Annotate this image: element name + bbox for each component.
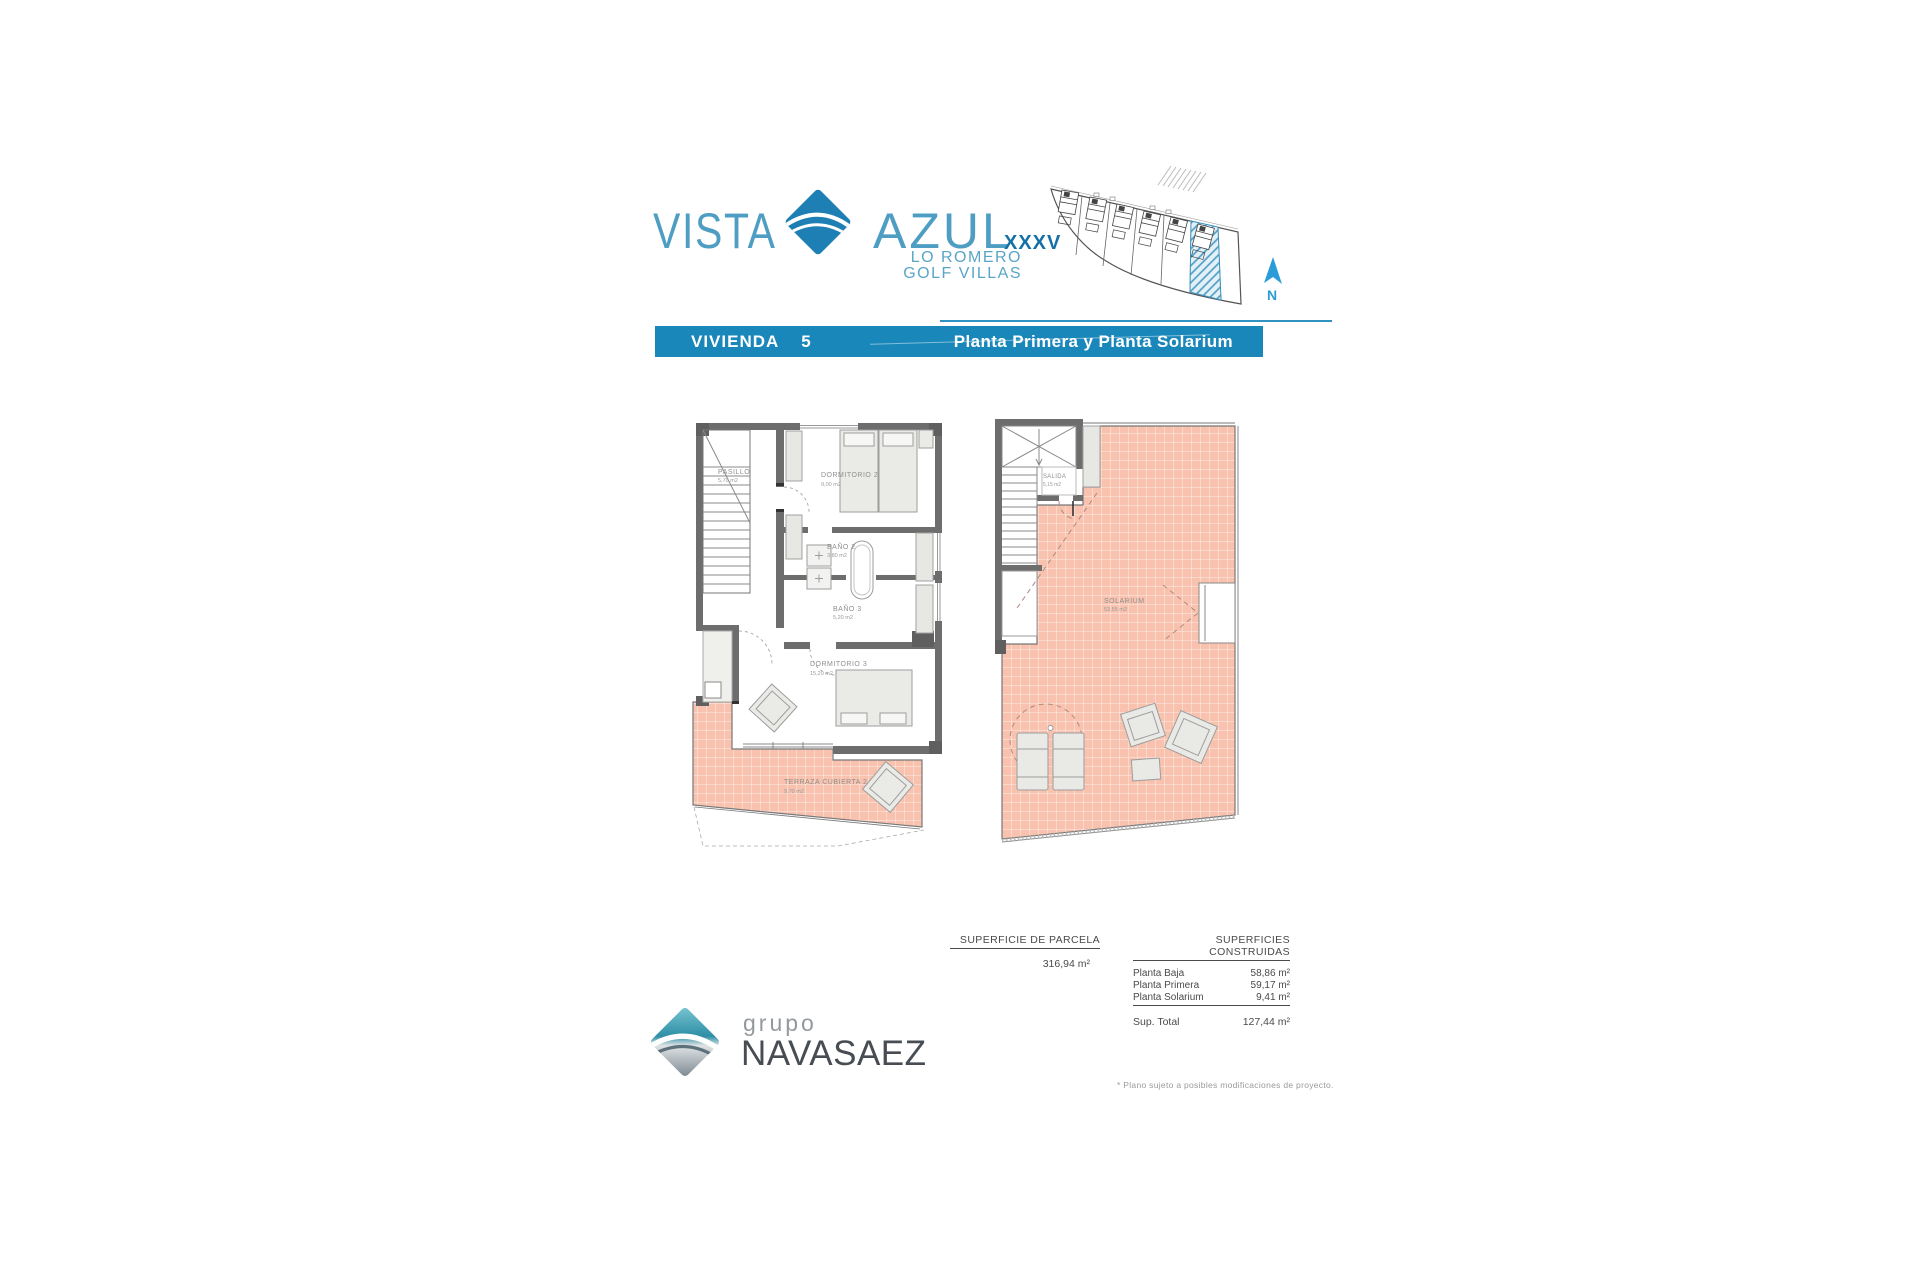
- beds-dormitorio2: [840, 430, 933, 512]
- vivienda-label: VIVIENDA: [691, 332, 779, 352]
- room-label-solarium: SOLARIUM: [1104, 598, 1145, 605]
- salida-room: [1042, 467, 1076, 495]
- glass-doors: [743, 742, 833, 749]
- row-label: Planta Baja: [1133, 968, 1184, 980]
- room-area-bano3: 5,20 m2: [833, 615, 853, 621]
- room-label-terraza: TERRAZA CUBIERTA 2: [784, 779, 867, 786]
- road-hatch: [1158, 166, 1206, 192]
- closet: [1083, 426, 1100, 487]
- floor-plan-primera: PASILLO 5,70 m2 DORMITORIO 2 9,00 m2 BAÑ…: [688, 415, 958, 865]
- sinks: [807, 545, 831, 589]
- room-label-dormitorio3: DORMITORIO 3: [810, 661, 867, 668]
- north-arrow-icon: N: [1264, 257, 1282, 303]
- room-label-dormitorio2: DORMITORIO 2: [821, 472, 878, 479]
- plan-sheet: VISTA AZUL XXXV LO ROMERO GOLF VILLAS: [0, 0, 1920, 1280]
- side-table: [1131, 758, 1160, 781]
- planter: [705, 682, 721, 698]
- vivienda-number: 5: [801, 332, 811, 352]
- parcela-value: 316,94 m²: [950, 958, 1100, 970]
- room-label-pasillo: PASILLO: [718, 469, 750, 476]
- built-areas-table: SUPERFICIES CONSTRUIDAS Planta Baja 58,8…: [1133, 934, 1290, 1028]
- row-value: 59,17 m²: [1251, 980, 1290, 992]
- table-row: Planta Baja 58,86 m²: [1133, 968, 1290, 980]
- brand-subtitle-line1: LO ROMERO: [830, 250, 1022, 266]
- row-label: Planta Solarium: [1133, 992, 1204, 1004]
- row-value: 9,41 m²: [1256, 992, 1290, 1004]
- planter-notch: [1199, 583, 1235, 643]
- logo-navasaez-text: NAVASAEZ: [741, 1034, 927, 1074]
- room-label-salida: SALIDA: [1043, 474, 1066, 480]
- brand-vista: VISTA: [653, 206, 777, 256]
- room-area-dormitorio2: 9,00 m2: [821, 482, 841, 488]
- brand-diamond-icon: [780, 184, 856, 260]
- room-area-dormitorio3: 15,20 m2: [810, 671, 833, 677]
- room-area-terraza: 9,70 m2: [784, 789, 804, 795]
- row-value: 58,86 m²: [1251, 968, 1290, 980]
- total-label: Sup. Total: [1133, 1016, 1180, 1028]
- table-total-row: Sup. Total 127,44 m²: [1133, 1016, 1290, 1028]
- armchair-dormitorio3: [749, 684, 797, 732]
- row-label: Planta Primera: [1133, 980, 1199, 992]
- parcela-header: SUPERFICIE DE PARCELA: [950, 934, 1100, 949]
- room-label-bano3: BAÑO 3: [833, 604, 862, 613]
- staircase: [1002, 467, 1037, 565]
- table-row: Planta Solarium 9,41 m²: [1133, 992, 1290, 1006]
- built-areas-header: SUPERFICIES CONSTRUIDAS: [1133, 934, 1290, 961]
- room-area-salida: 5,15 m2: [1043, 482, 1061, 488]
- site-plan-map: N: [1046, 163, 1331, 318]
- total-value: 127,44 m²: [1243, 1016, 1290, 1028]
- plan-title: Planta Primera y Planta Solarium: [954, 332, 1263, 352]
- navasaez-logo-icon: [645, 1002, 725, 1082]
- staircase: [703, 430, 750, 593]
- floor-plan-solarium: SALIDA 5,15 m2 S: [993, 415, 1248, 865]
- room-area-bano2: 3,80 m2: [827, 553, 847, 559]
- table-row: Planta Primera 59,17 m²: [1133, 980, 1290, 992]
- parcela-table: SUPERFICIE DE PARCELA 316,94 m²: [950, 934, 1100, 970]
- brand-subtitle: LO ROMERO GOLF VILLAS: [830, 250, 1022, 282]
- stair-roof-opening: [1002, 426, 1076, 467]
- room-area-solarium: 53,55 m2: [1104, 607, 1127, 613]
- bed-dormitorio3: [836, 670, 912, 726]
- pillar: [995, 640, 1006, 654]
- disclaimer-note: * Plano sujeto a posibles modificaciones…: [1117, 1080, 1334, 1090]
- logo-grupo-text: grupo: [743, 1010, 817, 1037]
- brand-subtitle-line2: GOLF VILLAS: [830, 266, 1022, 282]
- stair-void: [1002, 571, 1037, 636]
- north-label: N: [1267, 287, 1277, 303]
- room-label-bano2: BAÑO 2: [827, 542, 856, 551]
- title-rule-line: [940, 320, 1332, 322]
- room-area-pasillo: 5,70 m2: [718, 478, 738, 484]
